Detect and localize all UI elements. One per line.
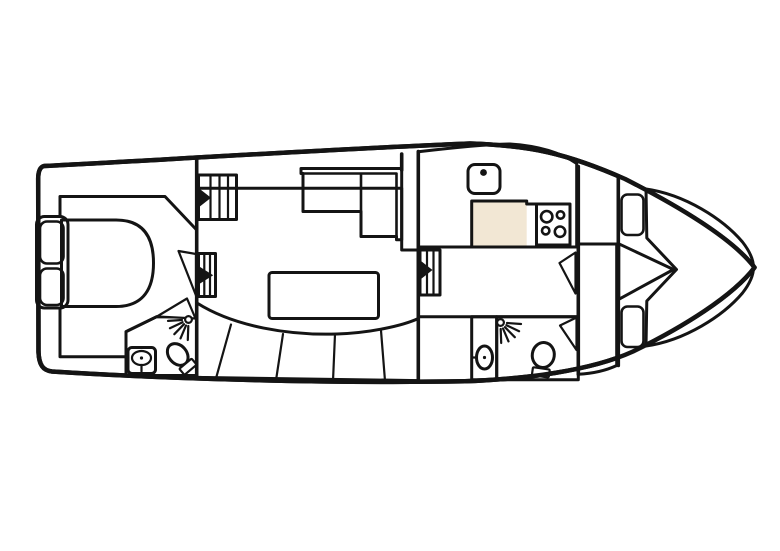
steps-fore [420,250,440,295]
fore-bathroom-fixtures [472,318,577,378]
galley-floor [472,201,527,247]
toilet [163,339,197,375]
door-leaf [560,318,577,351]
shower-head-icon [168,316,192,340]
direction-arrow-icon [199,267,213,285]
galley-sink [468,165,500,194]
four-burner-stove [537,204,571,245]
double-bed [62,220,154,307]
dining-table [269,273,379,319]
toilet-bowl [531,341,556,369]
aft-cabin-door-leaf [179,251,197,296]
l-shaped-sofa [301,169,402,240]
shower-rays [501,323,521,343]
bow-deck-area [617,176,753,365]
boat-floorplan-canvas [0,0,780,551]
salon-floor [197,188,419,380]
faucet-dot [480,169,487,176]
companionway-steps-aft [199,175,237,220]
washbasin-drain [483,356,486,359]
sofa-seat-lines [303,174,397,237]
aft-bathroom-fixtures [128,299,197,376]
interior-walls [197,152,619,381]
steps-treads [211,175,229,220]
curved-bench-seating [197,303,418,381]
shower-head-icon [497,319,521,343]
shower-rose [185,316,192,323]
stove-top [537,204,571,245]
sink-basin [468,165,500,194]
washbasin-drain [140,356,143,359]
direction-arrow-icon [199,189,211,208]
corridor-floor [418,247,578,317]
shower-rose [497,319,504,326]
boat-floorplan [0,0,780,551]
sofa-body [301,169,402,240]
shower-rays [168,320,188,340]
steps-aft-lower [199,254,216,297]
bow-corridor-floor [578,244,616,374]
bow-cabin-door-leaf [560,253,576,294]
aft-bed-group [37,217,154,309]
